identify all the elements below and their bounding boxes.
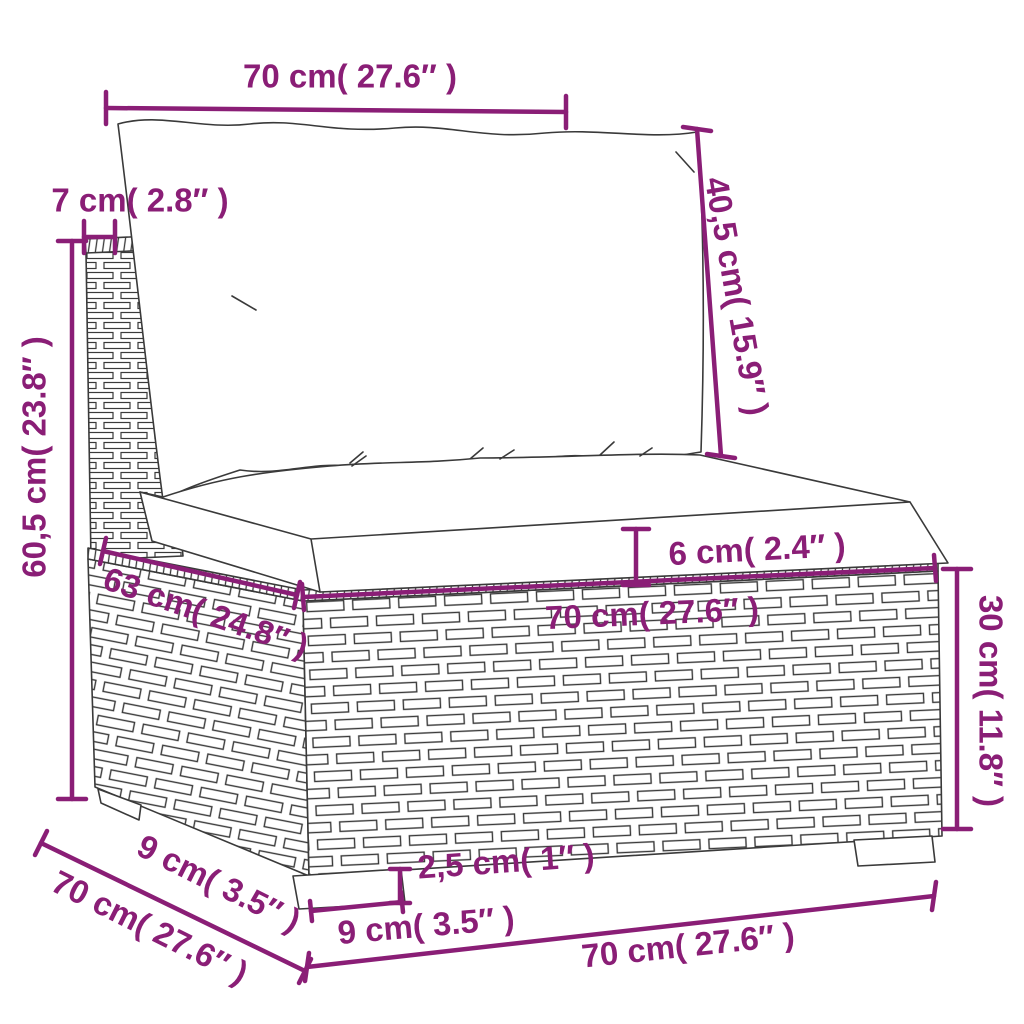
leg-front-right	[854, 836, 935, 866]
dim-label-base-height: 30 cm( 11.8″ )	[975, 595, 1008, 807]
dim-line-base-height	[943, 569, 971, 829]
back-cushion	[118, 120, 703, 500]
dim-line-total-height	[58, 241, 86, 799]
dim-label-total-height: 60,5 cm( 23.8″ )	[18, 336, 51, 577]
dimension-diagram: 70 cm( 27.6″ ) 40,5 cm( 15.9″ ) 7 cm( 2.…	[0, 0, 1024, 1024]
dim-label-cushion-thickness: 6 cm( 2.4″ )	[668, 528, 847, 570]
dim-label-frame-thickness: 7 cm( 2.8″ )	[51, 184, 228, 217]
dim-label-back-width: 70 cm( 27.6″ )	[243, 60, 457, 93]
dim-label-seat-width: 70 cm( 27.6″ )	[544, 592, 759, 634]
